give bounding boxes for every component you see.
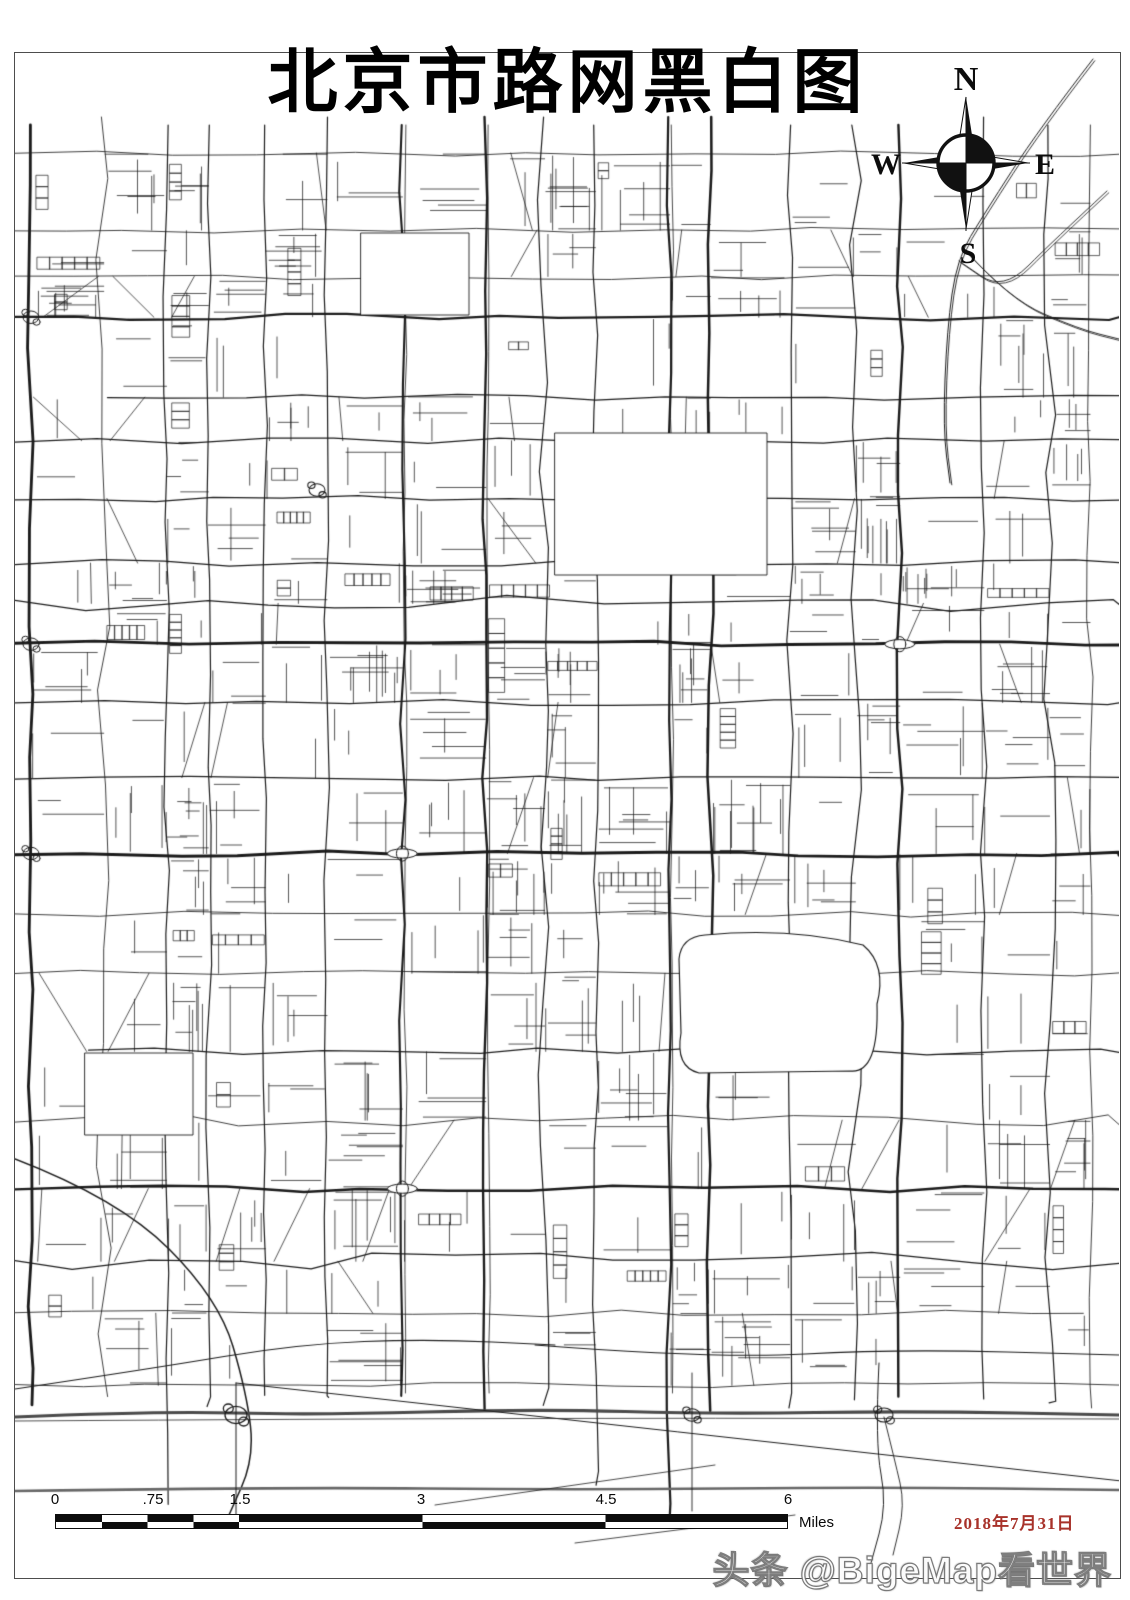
scale-tick-label: 1.5 (230, 1491, 251, 1508)
map-frame: 北京市路网黑白图 N W E (14, 52, 1121, 1579)
watermark-text: 头条 @BigeMap看世界 (712, 1540, 1112, 1594)
scale-tick-label: .75 (143, 1491, 164, 1508)
page: { "map": { "title": "北京市路网黑白图", "date_la… (0, 0, 1130, 1600)
scale-bar-row-bottom (56, 1522, 787, 1529)
map-date-label: 2018年7月31日 (954, 1509, 1075, 1534)
compass-label-north: N (954, 61, 979, 98)
compass-rose-icon: N W E S (867, 57, 1063, 269)
compass-hub (938, 135, 994, 191)
compass-label-south: S (960, 237, 977, 269)
scale-tick-label: 6 (784, 1491, 792, 1508)
road-network-canvas (15, 53, 1119, 1577)
scale-bar (55, 1514, 788, 1529)
compass-label-west: W (871, 148, 901, 181)
scale-tick-label: 3 (417, 1491, 425, 1508)
compass-label-east: E (1035, 148, 1055, 181)
scale-unit-label: Miles (799, 1514, 834, 1531)
scale-tick-label: 4.5 (596, 1491, 617, 1508)
scale-tick-label: 0 (51, 1491, 59, 1508)
